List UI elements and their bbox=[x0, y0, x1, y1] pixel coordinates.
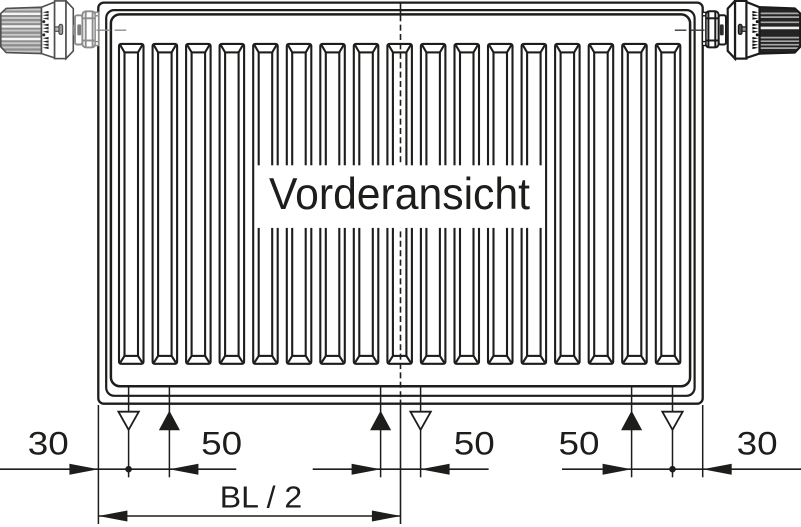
svg-text:30: 30 bbox=[28, 426, 69, 462]
svg-text:Vorderansicht: Vorderansicht bbox=[269, 170, 531, 219]
svg-text:BL / 2: BL / 2 bbox=[220, 480, 303, 515]
svg-text:50: 50 bbox=[201, 426, 242, 462]
svg-text:30: 30 bbox=[737, 426, 778, 462]
svg-text:50: 50 bbox=[559, 426, 600, 462]
svg-text:50: 50 bbox=[454, 426, 495, 462]
